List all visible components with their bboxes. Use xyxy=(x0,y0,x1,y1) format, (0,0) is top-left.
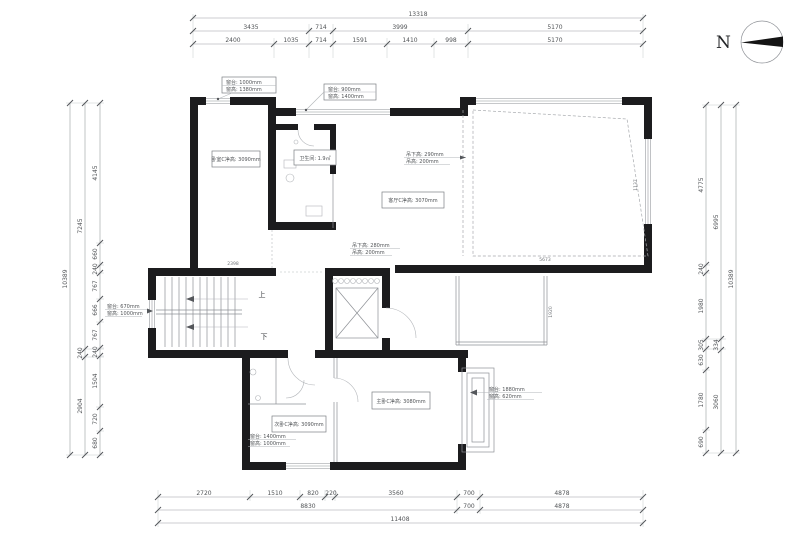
dim-value: 1980 xyxy=(698,298,705,313)
annotation-line: 吊高: 200mm xyxy=(352,249,385,256)
compass: N xyxy=(716,21,783,63)
dims-right: 4775 240 1980 305 630 1780 690 6995 334 … xyxy=(698,177,735,448)
dim-value: 720 xyxy=(92,413,99,425)
dim-value: 2904 xyxy=(77,398,84,413)
annotation-ceiling-b: 吊下高: 280mm 吊高: 200mm xyxy=(350,242,400,256)
dim-value: 305 xyxy=(698,339,705,351)
dim-value: 1920 xyxy=(548,306,554,318)
dim-value: 1591 xyxy=(352,37,367,44)
room-label-text: 客厅C净高: 3070mm xyxy=(388,197,437,204)
roof-outline xyxy=(463,110,648,256)
dim-value: 13318 xyxy=(408,11,427,18)
stair-down-label: 下 xyxy=(261,333,268,341)
room-label-bedroom-bl: 次卧C净高: 3090mm xyxy=(272,416,326,432)
room-label-text: 卧室C净高: 3090mm xyxy=(211,156,260,163)
dim-value: 1780 xyxy=(698,392,705,407)
room-label-bath: 卫生间: 1.9㎡ xyxy=(294,150,336,165)
annotation-window-bottom-right: 窗台: 1880mm 窗高: 620mm xyxy=(470,386,542,400)
dim-value: 714 xyxy=(315,37,327,44)
window-living-right xyxy=(644,139,652,224)
annotation-window-bottom-left: 窗台: 1400mm 窗高: 1000mm xyxy=(248,433,296,447)
room-label-bedroom-br: 主卧C净高: 3080mm xyxy=(372,392,430,409)
compass-needle xyxy=(741,37,783,48)
dim-value: 5673 xyxy=(539,257,551,263)
floor-plan-drawing: 13318 3435 714 3999 5170 2400 1035 714 1… xyxy=(0,0,812,540)
dim-value: 4878 xyxy=(554,503,569,510)
stair-arrow-down xyxy=(186,324,194,330)
closet-fixtures xyxy=(250,369,261,401)
annotation-ceiling-a: 吊下高: 290mm 吊高: 200mm xyxy=(404,151,466,165)
dim-value: 2720 xyxy=(196,490,211,497)
annotation-window-top-left: 窗台: 1000mm 窗高: 1380mm xyxy=(217,77,276,100)
dim-value: 820 xyxy=(307,490,319,497)
dim-value: 5170 xyxy=(547,37,562,44)
dim-value: 2398 xyxy=(227,261,239,267)
annotation-line: 窗台: 670mm xyxy=(107,303,140,310)
annotation-line: 窗高: 1000mm xyxy=(107,310,143,317)
dim-value: 4775 xyxy=(698,177,705,192)
dims-left: 4145 660 240 767 666 767 240 1504 720 68… xyxy=(62,165,99,449)
dim-value: 767 xyxy=(92,280,99,292)
room-label-text: 次卧C净高: 3090mm xyxy=(274,421,323,428)
dim-value: 630 xyxy=(698,354,705,366)
dims-top: 13318 3435 714 3999 5170 2400 1035 714 1… xyxy=(225,11,562,44)
dim-value: 1504 xyxy=(92,373,99,388)
annotation-line: 窗高: 1000mm xyxy=(250,440,286,447)
dim-value: 6995 xyxy=(713,214,720,229)
annotation-line: 吊高: 200mm xyxy=(406,158,439,165)
dim-value: 767 xyxy=(92,329,99,341)
dim-value: 334 xyxy=(713,339,720,351)
annotation-line: 窗台: 1400mm xyxy=(250,433,286,440)
annotation-line: 窗台: 1880mm xyxy=(489,386,525,393)
dim-value: 1510 xyxy=(267,490,282,497)
annotation-line: 吊下高: 290mm xyxy=(406,151,444,158)
window-stair-left xyxy=(148,300,156,328)
dim-value: 5170 xyxy=(547,24,562,31)
dim-value: 3435 xyxy=(243,24,258,31)
floor-plan-page: 13318 3435 714 3999 5170 2400 1035 714 1… xyxy=(0,0,812,540)
dim-value: 660 xyxy=(92,248,99,260)
room-label-bedroom-tl: 卧室C净高: 3090mm xyxy=(211,151,260,167)
annotation-line: 窗高: 620mm xyxy=(489,393,522,400)
interior-partitions xyxy=(248,130,547,462)
dim-value: 11408 xyxy=(390,516,409,523)
window-living-top xyxy=(476,97,622,105)
annotation-line: 吊下高: 280mm xyxy=(352,242,390,249)
room-label-text: 主卧C净高: 3080mm xyxy=(376,398,425,405)
dim-value: 4145 xyxy=(92,165,99,180)
room-label-living: 客厅C净高: 3070mm xyxy=(382,192,444,208)
dim-value: 1137 xyxy=(633,179,639,191)
dim-value: 10389 xyxy=(728,269,735,288)
dim-value: 4878 xyxy=(554,490,569,497)
dim-value: 714 xyxy=(315,24,327,31)
annotation-line: 窗台: 1000mm xyxy=(226,79,262,86)
dim-value: 7245 xyxy=(77,218,84,233)
dim-value: 1035 xyxy=(283,37,298,44)
window-bottom xyxy=(286,462,330,470)
dim-value: 690 xyxy=(698,436,705,448)
dim-value: 240 xyxy=(698,263,705,275)
elevator xyxy=(333,279,380,339)
room-label-text: 卫生间: 1.9㎡ xyxy=(299,155,330,162)
annotation-window-top-middle: 窗台: 900mm 窗高: 1400mm xyxy=(305,84,376,111)
north-label: N xyxy=(716,33,731,53)
dim-value: 240 xyxy=(77,347,84,359)
dim-value: 700 xyxy=(463,490,475,497)
coil-symbol xyxy=(333,279,380,284)
dim-value: 10389 xyxy=(62,269,69,288)
annotation-window-stair: 窗台: 670mm 窗高: 1000mm xyxy=(105,303,153,317)
bay-window-bottom-right xyxy=(462,368,494,452)
dim-value: 998 xyxy=(445,37,457,44)
annotation-line: 窗台: 900mm xyxy=(328,86,361,93)
annotations: 窗台: 1000mm 窗高: 1380mm 窗台: 900mm 窗高: 1400… xyxy=(105,77,542,447)
dim-value: 220 xyxy=(325,490,337,497)
dim-value: 2400 xyxy=(225,37,240,44)
dim-value: 666 xyxy=(92,304,99,316)
dim-value: 3060 xyxy=(713,394,720,409)
dim-value: 3999 xyxy=(392,24,407,31)
dim-value: 700 xyxy=(463,503,475,510)
annotation-line: 窗高: 1400mm xyxy=(328,93,364,100)
dim-value: 680 xyxy=(92,437,99,449)
staircase: 上 下 xyxy=(156,277,268,347)
dim-value: 3560 xyxy=(388,490,403,497)
stair-up-label: 上 xyxy=(259,290,266,299)
balcony-rail xyxy=(456,276,547,345)
dim-value: 1410 xyxy=(402,37,417,44)
annotation-line: 窗高: 1380mm xyxy=(226,86,262,93)
dim-value: 240 xyxy=(92,263,99,275)
window-middle-top xyxy=(296,108,390,116)
stair-arrow-up xyxy=(186,296,194,302)
dim-value: 8830 xyxy=(300,503,315,510)
dim-value: 240 xyxy=(92,346,99,358)
